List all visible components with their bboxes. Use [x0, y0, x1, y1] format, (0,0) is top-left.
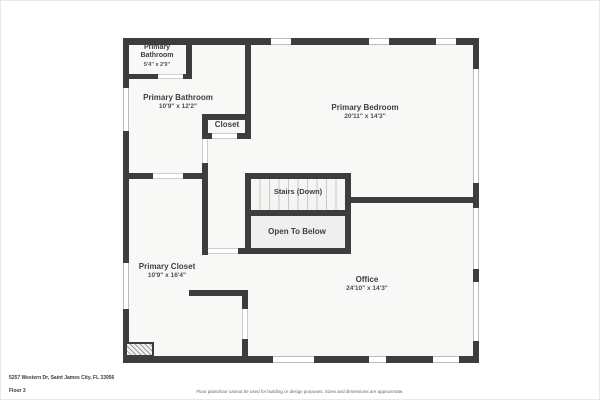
- exterior-wall-left: [123, 38, 129, 363]
- stairs-openbelow-divider-wall: [245, 210, 351, 216]
- window: [436, 38, 456, 45]
- room-dimensions: 10'9" x 16'4": [139, 272, 195, 280]
- window: [433, 356, 459, 363]
- room-label-closet: Closet: [215, 120, 239, 129]
- open-to-below-bottom-wall: [238, 248, 351, 254]
- room-label-primary-bedroom: Primary Bedroom 20'11" x 14'3": [331, 103, 398, 121]
- office-left-horizontal-wall: [189, 290, 248, 296]
- door-opening: [208, 248, 238, 254]
- window: [369, 356, 386, 363]
- exterior-wall-top: [123, 38, 479, 45]
- room-name: Closet: [215, 120, 239, 129]
- room-name: Primary Closet: [139, 262, 195, 271]
- door-opening: [202, 139, 208, 163]
- room-name: Stairs (Down): [274, 188, 322, 197]
- room-dimensions: 10'9" x 12'2": [143, 103, 213, 111]
- window: [123, 263, 129, 309]
- room-label-primary-bathroom-small: Primary Bathroom 5'4" x 2'9": [140, 44, 173, 68]
- window: [273, 356, 314, 363]
- room-name: Primary Bedroom: [331, 103, 398, 112]
- room-dimensions: 20'11" x 14'3": [331, 113, 398, 121]
- room-label-open-to-below: Open To Below: [268, 227, 326, 236]
- stairs-top-wall: [245, 173, 351, 179]
- room-name: Primary Bathroom: [143, 93, 213, 102]
- floor-plan-page: Primary Bathroom 5'4" x 2'9" Primary Bat…: [0, 0, 600, 400]
- room-label-primary-closet: Primary Closet 10'9" x 16'4": [139, 262, 195, 280]
- window: [369, 38, 389, 45]
- door-opening: [158, 74, 183, 79]
- hatched-shaft-area: [125, 342, 154, 357]
- room-name: Open To Below: [268, 227, 326, 236]
- window: [473, 208, 479, 269]
- room-dimensions: 5'4" x 2'9": [140, 62, 173, 68]
- window: [123, 88, 129, 131]
- room-name: Office: [346, 275, 388, 284]
- disclaimer-text: Floor plans/tour cannot be used for buil…: [1, 389, 599, 394]
- property-address: 5257 Western Dr, Saint James City, FL 33…: [9, 375, 114, 381]
- window: [271, 38, 291, 45]
- small-bathroom-right-wall: [186, 38, 192, 79]
- room-dimensions: 24'10" x 14'3": [346, 285, 388, 293]
- window: [473, 69, 479, 183]
- window: [473, 282, 479, 341]
- room-label-primary-bathroom: Primary Bathroom 10'9" x 12'2": [143, 93, 213, 111]
- room-label-office: Office 24'10" x 14'3": [346, 275, 388, 293]
- door-opening: [242, 309, 248, 339]
- room-label-stairs: Stairs (Down): [274, 188, 322, 197]
- bedroom-left-wall: [245, 38, 251, 139]
- bedroom-office-divider-wall: [351, 197, 473, 203]
- room-name: Primary Bathroom: [140, 44, 173, 61]
- door-opening: [153, 173, 183, 179]
- door-opening: [212, 133, 237, 139]
